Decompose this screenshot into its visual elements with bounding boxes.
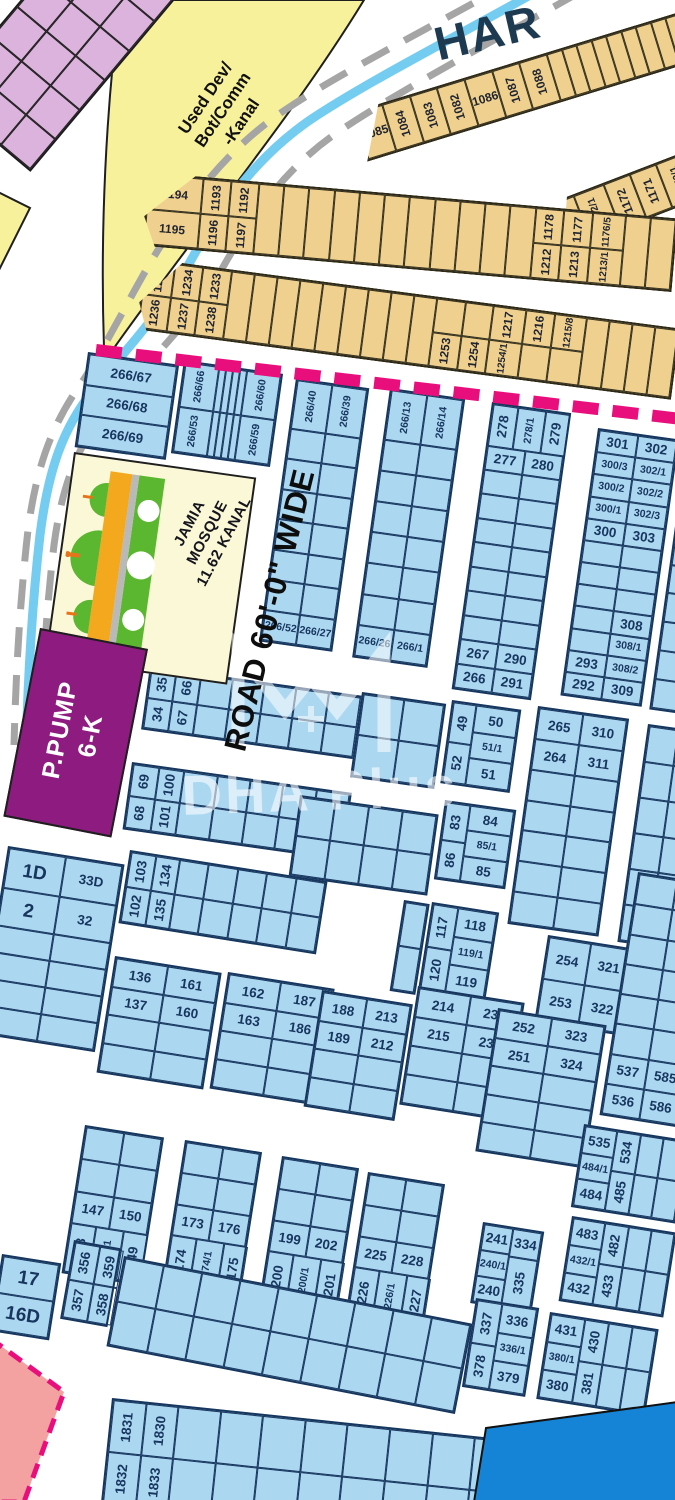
plot-number: 266/59 bbox=[247, 423, 262, 456]
plot-cell: 1234 bbox=[171, 264, 204, 301]
plot-number: 1176/5 bbox=[601, 216, 614, 247]
plot-number: 1170/1 bbox=[669, 164, 675, 196]
plot-number: 309 bbox=[610, 683, 634, 700]
plot-cell: 1212 bbox=[530, 243, 562, 280]
plot-number: 228 bbox=[400, 1252, 424, 1269]
plot-cell-empty bbox=[216, 1411, 264, 1467]
plot-number: 1086 bbox=[471, 89, 500, 108]
plot-cell-empty bbox=[343, 1425, 391, 1481]
plot-number: 308/2 bbox=[611, 662, 638, 676]
plot-cell-empty bbox=[433, 298, 466, 335]
plot-number: 337 bbox=[478, 1311, 495, 1335]
plot-cell-empty bbox=[394, 599, 434, 635]
plot-map: JAMIA MOSQUE 11.62 KANAL P.PUMP 6-K 1085… bbox=[0, 0, 675, 1500]
plot-number: 266/27 bbox=[299, 625, 332, 640]
plot-number: 585 bbox=[653, 1069, 675, 1086]
plot-number: 147 bbox=[81, 1202, 105, 1219]
plot-number: 1193 bbox=[209, 184, 223, 211]
plot-number: 534 bbox=[618, 1141, 635, 1165]
blk-266-13-col: 266/13266/14266/26266/1 bbox=[352, 388, 465, 668]
plot-cell: 432 bbox=[561, 1272, 597, 1304]
plot-number: 430 bbox=[585, 1330, 602, 1354]
plot-number: 213 bbox=[374, 1008, 398, 1025]
plot-number: 302/1 bbox=[639, 464, 666, 478]
plot-number: 212 bbox=[370, 1036, 394, 1053]
plot-number: 433 bbox=[599, 1274, 616, 1298]
plot-number: 1087 bbox=[503, 76, 522, 105]
plot-cell-empty bbox=[291, 878, 326, 917]
plot-cell-empty bbox=[325, 841, 364, 884]
plot-number: 323 bbox=[564, 1028, 588, 1045]
plot-cell-empty bbox=[510, 892, 558, 929]
plot-number: 240/1 bbox=[479, 1258, 507, 1272]
plot-cell-empty bbox=[652, 679, 675, 711]
plot-number: 266/1 bbox=[396, 641, 423, 655]
purple-grid bbox=[0, 0, 181, 172]
plot-number: 49 bbox=[455, 715, 470, 732]
plot-number: 86 bbox=[443, 852, 458, 869]
plot-number: 118 bbox=[463, 917, 487, 934]
plot-number: 311 bbox=[587, 755, 610, 771]
plot-cell-empty bbox=[656, 651, 675, 683]
plot-number: 432 bbox=[567, 1280, 591, 1297]
plot-cell-empty bbox=[407, 506, 447, 542]
plot-cell: 379 bbox=[488, 1361, 528, 1395]
plot-cell-empty bbox=[544, 1446, 582, 1500]
blk-337: 337378336336/1379 bbox=[462, 1298, 539, 1397]
plot-number: 380 bbox=[545, 1378, 569, 1395]
plot-cell-empty bbox=[313, 494, 352, 529]
plot-cell-empty bbox=[367, 532, 407, 568]
plot-number: 483 bbox=[575, 1226, 599, 1243]
plot-cell-empty bbox=[337, 1477, 385, 1500]
plot-cell-empty bbox=[672, 536, 675, 568]
plot-number: 266/67 bbox=[110, 366, 153, 385]
plot-cell: 1176/5 bbox=[590, 213, 626, 251]
plot-cell: 1235 bbox=[142, 260, 175, 297]
plot-number: 253 bbox=[548, 994, 572, 1011]
plot-cell-empty bbox=[412, 475, 452, 511]
plot-number: 50 bbox=[488, 714, 505, 729]
plot-number: 1177 bbox=[570, 216, 584, 243]
plot-cell: 586 bbox=[639, 1089, 675, 1125]
plot-number: 1178 bbox=[542, 213, 556, 240]
plot-number: 308/1 bbox=[615, 640, 642, 654]
blk-535: 535484/1484534485 bbox=[571, 1124, 675, 1224]
blk-431: 431380/1380430381 bbox=[536, 1312, 658, 1416]
plot-cell-empty bbox=[639, 1271, 668, 1315]
plot-cell: 1213 bbox=[558, 245, 590, 282]
plot-number: 1832 bbox=[114, 1464, 131, 1495]
plot-cell: 279 bbox=[540, 412, 570, 457]
plot-number: 266/69 bbox=[101, 427, 144, 446]
plot-number: 264 bbox=[543, 749, 567, 766]
plot-number: 300/1 bbox=[594, 503, 621, 517]
plot-cell: 1233 bbox=[199, 268, 232, 305]
plot-number: 378 bbox=[471, 1354, 488, 1378]
plot-cell-empty bbox=[416, 445, 456, 481]
plot-number: 1085 bbox=[361, 122, 390, 141]
plot-number: 150 bbox=[118, 1208, 142, 1225]
plot-cell: 1238 bbox=[195, 301, 228, 338]
blk-266-66: 266/66266/53266/60266/59 bbox=[171, 360, 283, 467]
plot-number: 1235 bbox=[151, 265, 166, 293]
blk-277-col: 278278/1279277280267290266291 bbox=[452, 402, 572, 700]
plot-number: 280 bbox=[531, 457, 555, 474]
plot-cell-empty bbox=[415, 1361, 462, 1412]
plot-cell: 1832 bbox=[103, 1452, 141, 1500]
plot-row bbox=[652, 679, 675, 715]
plot-cell: 266/1 bbox=[390, 630, 430, 666]
plot-number: 199 bbox=[278, 1230, 302, 1247]
plot-number: 201 bbox=[321, 1272, 338, 1296]
plot-cell-empty bbox=[358, 694, 404, 740]
plot-cell: 16D bbox=[0, 1293, 53, 1338]
plot-cell-empty bbox=[517, 344, 550, 381]
plot-number: 1215/8 bbox=[562, 317, 576, 349]
plot-number: 266/39 bbox=[339, 395, 354, 428]
plot-cell-empty bbox=[295, 1472, 343, 1500]
plot-number: 1830 bbox=[152, 1416, 169, 1447]
plot-number: 119 bbox=[454, 974, 478, 991]
plot-number: 266/60 bbox=[253, 379, 268, 412]
plot-number: 225 bbox=[364, 1246, 388, 1263]
plot-number: 291 bbox=[500, 675, 524, 692]
plot-number: 302/3 bbox=[633, 508, 660, 522]
plot-cell: 1177 bbox=[561, 210, 593, 247]
plot-number: 35 bbox=[154, 676, 169, 693]
plot-cell-empty bbox=[645, 218, 675, 290]
plot-number: 300/2 bbox=[598, 481, 625, 495]
plot-cell-empty bbox=[461, 302, 494, 339]
plot-number: 32 bbox=[76, 912, 93, 928]
plot-number: 117 bbox=[434, 916, 451, 940]
plot-number: 1088 bbox=[530, 67, 549, 96]
plot-cell-empty bbox=[427, 1434, 475, 1490]
plot-number: 176 bbox=[217, 1220, 241, 1237]
plot-cell: 266/26 bbox=[354, 625, 394, 661]
plot-number: 266/66 bbox=[192, 370, 207, 403]
plot-number: 432/1 bbox=[569, 1254, 597, 1268]
plot-number: 277 bbox=[493, 452, 517, 469]
plot-number: 310 bbox=[591, 724, 615, 741]
plot-number: 1212 bbox=[538, 248, 552, 276]
plot-cell-empty bbox=[349, 1084, 397, 1119]
plot-number: 336 bbox=[505, 1313, 529, 1330]
plot-number: 1238 bbox=[204, 306, 219, 334]
plot-number: 2 bbox=[22, 901, 35, 921]
plot-cell: 1216 bbox=[522, 310, 555, 347]
plot-number: 266 bbox=[462, 670, 486, 687]
plot-cell-empty bbox=[210, 1463, 258, 1500]
plot-number: 1216 bbox=[531, 315, 546, 343]
blk-265: 265310264311 bbox=[507, 706, 629, 937]
plot-number: 160 bbox=[175, 1004, 199, 1021]
plot-number: 67 bbox=[175, 710, 190, 727]
plot-cell: 292 bbox=[563, 672, 605, 699]
plot-cell-empty bbox=[546, 348, 583, 386]
plot-cell: 1254 bbox=[457, 336, 490, 373]
plot-cell-empty bbox=[256, 714, 292, 748]
plot-number: 16D bbox=[4, 1303, 41, 1327]
plot-number: 300 bbox=[593, 524, 617, 541]
plot-blocks: JAMIA MOSQUE 11.62 KANAL P.PUMP 6-K 1085… bbox=[0, 0, 675, 1500]
plot-number: 186 bbox=[288, 1020, 312, 1037]
plot-cell: 85 bbox=[460, 856, 507, 887]
plot-number: 188 bbox=[331, 1001, 355, 1018]
blk-17: 1716D bbox=[0, 1254, 61, 1340]
plot-number: 1254/1 bbox=[497, 343, 511, 375]
plot-cell: 1215/8 bbox=[550, 314, 587, 352]
plot-number: 357 bbox=[69, 1288, 86, 1313]
plot-number: 34 bbox=[150, 706, 165, 723]
plot-number: 1082 bbox=[448, 92, 467, 121]
plot-cell: 291 bbox=[492, 669, 533, 698]
plot-cell: 1236 bbox=[138, 294, 171, 331]
plot-number: 1213 bbox=[567, 250, 581, 278]
plot-number: 17 bbox=[16, 1268, 40, 1290]
plot-number: 485 bbox=[611, 1180, 628, 1204]
plot-number: 334 bbox=[513, 1237, 537, 1254]
plot-cell-empty bbox=[300, 1420, 348, 1476]
plot-number: 173 bbox=[181, 1214, 205, 1231]
plot-cell: 334 bbox=[509, 1229, 542, 1262]
plot-number: 265 bbox=[547, 718, 571, 735]
blk-117: 117120118119/1119 bbox=[418, 902, 499, 1002]
plot-number: 102 bbox=[127, 894, 144, 918]
plot-number: 266/53 bbox=[186, 415, 201, 448]
plot-number: 187 bbox=[292, 992, 316, 1009]
plot-number: 162 bbox=[241, 984, 265, 1001]
plot-number: 302/2 bbox=[636, 486, 663, 500]
plot-number: 278/1 bbox=[522, 416, 536, 443]
plot-number: 279 bbox=[547, 422, 564, 446]
plot-number: 359 bbox=[100, 1255, 117, 1280]
plot-number: 278 bbox=[495, 414, 512, 438]
blk-188: 188213189212 bbox=[304, 990, 413, 1121]
plot-cell-empty bbox=[664, 593, 675, 625]
plot-column bbox=[645, 218, 675, 290]
plot-cell-empty bbox=[469, 1438, 517, 1494]
plot-number: 1217 bbox=[500, 311, 515, 339]
plot-cell: 266 bbox=[454, 663, 495, 692]
plot-cell: 1178 bbox=[533, 208, 565, 245]
plot-number: 136 bbox=[128, 968, 152, 985]
plot-cell: 309 bbox=[601, 677, 643, 704]
plot-cell-empty bbox=[291, 836, 330, 879]
plot-cell: 1830 bbox=[141, 1404, 179, 1459]
plot-cell: 1253 bbox=[428, 332, 461, 369]
plot-cell-empty bbox=[619, 1454, 667, 1500]
plot-number: 266/14 bbox=[434, 406, 449, 439]
plot-number: 266/13 bbox=[399, 401, 414, 434]
plot-number: 85 bbox=[475, 864, 492, 879]
plot-cell: 1197 bbox=[225, 216, 256, 253]
plot-number: 267 bbox=[466, 646, 490, 663]
plot-number: 1196 bbox=[206, 219, 220, 246]
plot-cell-empty bbox=[173, 1407, 221, 1463]
plot-cell: 1192 bbox=[228, 181, 259, 218]
plot-cell: 266/14 bbox=[420, 395, 463, 449]
plot-cell: 484 bbox=[573, 1179, 609, 1210]
plot-number: 484 bbox=[579, 1186, 603, 1203]
plot-number: 381 bbox=[579, 1371, 596, 1395]
plot-number: 1083 bbox=[421, 101, 440, 130]
plot-cell-empty bbox=[399, 568, 439, 604]
plot-cell: 266/60 bbox=[241, 371, 281, 420]
plot-number: 1197 bbox=[234, 221, 248, 248]
plot-number: 484/1 bbox=[581, 1161, 609, 1175]
plot-cell: 266/27 bbox=[296, 614, 335, 649]
plot-cell-empty bbox=[304, 554, 343, 589]
plot-number: 379 bbox=[496, 1369, 520, 1386]
plot-number: 163 bbox=[236, 1012, 260, 1029]
plot-number: 252 bbox=[511, 1020, 535, 1037]
plot-number: 586 bbox=[648, 1099, 672, 1116]
plot-number: 240 bbox=[477, 1282, 501, 1299]
plot-cell: 1833 bbox=[135, 1455, 173, 1500]
plot-number: 535 bbox=[587, 1134, 611, 1151]
plot-number: 482 bbox=[606, 1233, 623, 1257]
plot-number: 241 bbox=[485, 1231, 509, 1248]
plot-cell: 1195 bbox=[144, 209, 201, 249]
plot-cell-empty bbox=[645, 726, 675, 766]
plot-cell-empty bbox=[309, 524, 348, 559]
plot-number: 214 bbox=[431, 998, 455, 1015]
plot-number: 85/1 bbox=[476, 840, 498, 853]
plot-number: 324 bbox=[559, 1056, 583, 1073]
plot-number: 1253 bbox=[437, 337, 452, 365]
plot-cell-empty bbox=[253, 1468, 301, 1500]
plot-number: 1172 bbox=[615, 187, 636, 216]
plot-number: 1171 bbox=[641, 177, 662, 206]
plot-number: 321 bbox=[596, 959, 620, 976]
plot-cell-empty bbox=[392, 946, 421, 993]
plot-cell-empty bbox=[403, 537, 443, 573]
plot-number: 227 bbox=[407, 1288, 424, 1312]
plot-number: 1233 bbox=[208, 272, 223, 300]
plot-cell-empty bbox=[620, 1369, 650, 1414]
plot-cell: 1254/1 bbox=[485, 340, 522, 378]
plot-cell: 380 bbox=[539, 1370, 577, 1403]
plot-number: 66 bbox=[179, 680, 194, 697]
plot-number: 300/3 bbox=[601, 459, 628, 473]
plot-cell-empty bbox=[626, 1327, 656, 1372]
plot-cell-empty bbox=[577, 1449, 625, 1500]
plot-number: 1254 bbox=[465, 341, 480, 369]
plot-cell-empty bbox=[320, 723, 356, 757]
plot-cell-empty bbox=[293, 689, 329, 723]
plot-number: 1192 bbox=[237, 186, 251, 213]
plot-number: 202 bbox=[314, 1236, 338, 1253]
plot-number: 254 bbox=[555, 953, 579, 970]
plot-number: 1237 bbox=[175, 302, 190, 330]
plot-number: 303 bbox=[632, 529, 656, 546]
plot-number: 358 bbox=[93, 1293, 110, 1318]
plot-number: 1195 bbox=[159, 222, 186, 236]
blk-136: 136161137160 bbox=[97, 956, 222, 1089]
plot-number: 290 bbox=[503, 651, 527, 668]
plot-number: 215 bbox=[426, 1027, 450, 1044]
plot-cell-empty bbox=[379, 1481, 427, 1500]
plot-cell-empty bbox=[372, 501, 412, 537]
plot-cell-empty bbox=[660, 622, 675, 654]
plot-number: 1234 bbox=[179, 269, 194, 297]
plot-cell: 1237 bbox=[166, 298, 199, 335]
plot-cell-empty bbox=[168, 1459, 216, 1500]
blk-266-67: 266/67266/68266/69 bbox=[75, 352, 179, 460]
plot-cell-empty bbox=[325, 693, 361, 727]
plot-cell-empty bbox=[288, 718, 324, 752]
plot-number: 189 bbox=[327, 1030, 351, 1047]
plot-cell: 1831 bbox=[108, 1400, 146, 1455]
plot-number: 356 bbox=[76, 1251, 93, 1276]
plot-cell: 266/59 bbox=[234, 415, 274, 464]
plot-row: 16D bbox=[0, 1293, 53, 1338]
plot-cell-empty bbox=[363, 563, 403, 599]
plot-number: 266/68 bbox=[105, 396, 148, 415]
plot-number: 380/1 bbox=[548, 1351, 576, 1365]
plot-number: 135 bbox=[151, 898, 168, 922]
blk-483: 483432/1432482433 bbox=[559, 1216, 675, 1318]
plot-number: 336/1 bbox=[499, 1342, 527, 1356]
plot-number: 161 bbox=[179, 976, 203, 993]
plot-cell: 1217 bbox=[490, 306, 527, 344]
plot-number: 1213/1 bbox=[598, 251, 611, 282]
plot-number: 537 bbox=[615, 1063, 639, 1080]
plot-number: 301 bbox=[605, 436, 629, 453]
plot-cell-empty bbox=[300, 584, 339, 619]
plot-number: 120 bbox=[427, 958, 444, 982]
plot-number: 1084 bbox=[393, 109, 412, 138]
plot-number: 292 bbox=[571, 677, 595, 694]
plot-cell-empty bbox=[306, 1077, 354, 1112]
plot-number: 33D bbox=[78, 873, 105, 890]
plot-number: 536 bbox=[611, 1093, 635, 1110]
plot-cell: 1213/1 bbox=[587, 248, 623, 286]
plot-cell-empty bbox=[258, 1416, 306, 1472]
plot-number: 322 bbox=[590, 1001, 614, 1018]
plot-cell-empty bbox=[398, 700, 444, 746]
plot-number: 302 bbox=[644, 441, 668, 458]
plot-number: 335 bbox=[511, 1271, 528, 1295]
plot-number: 103 bbox=[133, 859, 150, 883]
plot-cell-empty bbox=[385, 1429, 433, 1485]
plot-cell-empty bbox=[553, 898, 601, 935]
plot-cell-empty bbox=[359, 594, 399, 630]
plot-number: 1833 bbox=[146, 1467, 163, 1498]
plot-cell-empty bbox=[423, 1318, 470, 1369]
plot-cell-empty bbox=[358, 845, 397, 888]
plot-number: 134 bbox=[157, 863, 174, 887]
plot-cell-empty bbox=[380, 440, 420, 476]
plot-number: 293 bbox=[575, 655, 599, 672]
blk-1830-band: 18311832183018331818181 bbox=[101, 1398, 669, 1500]
plot-cell: 254 bbox=[543, 937, 591, 985]
plot-cell-empty bbox=[645, 1231, 674, 1275]
plot-number: 1831 bbox=[119, 1412, 136, 1443]
plot-cell-empty bbox=[399, 902, 428, 949]
plot-cell: 1196 bbox=[197, 214, 228, 251]
plot-number: 119/1 bbox=[457, 946, 484, 960]
plot-number: 251 bbox=[507, 1048, 531, 1065]
plot-number: 266/26 bbox=[358, 635, 391, 650]
plot-number: 1236 bbox=[147, 299, 162, 327]
plot-cell: 536 bbox=[602, 1083, 644, 1119]
plot-cell-empty bbox=[392, 850, 431, 893]
plot-number: 1D bbox=[21, 861, 48, 884]
plot-number: 431 bbox=[554, 1322, 578, 1339]
